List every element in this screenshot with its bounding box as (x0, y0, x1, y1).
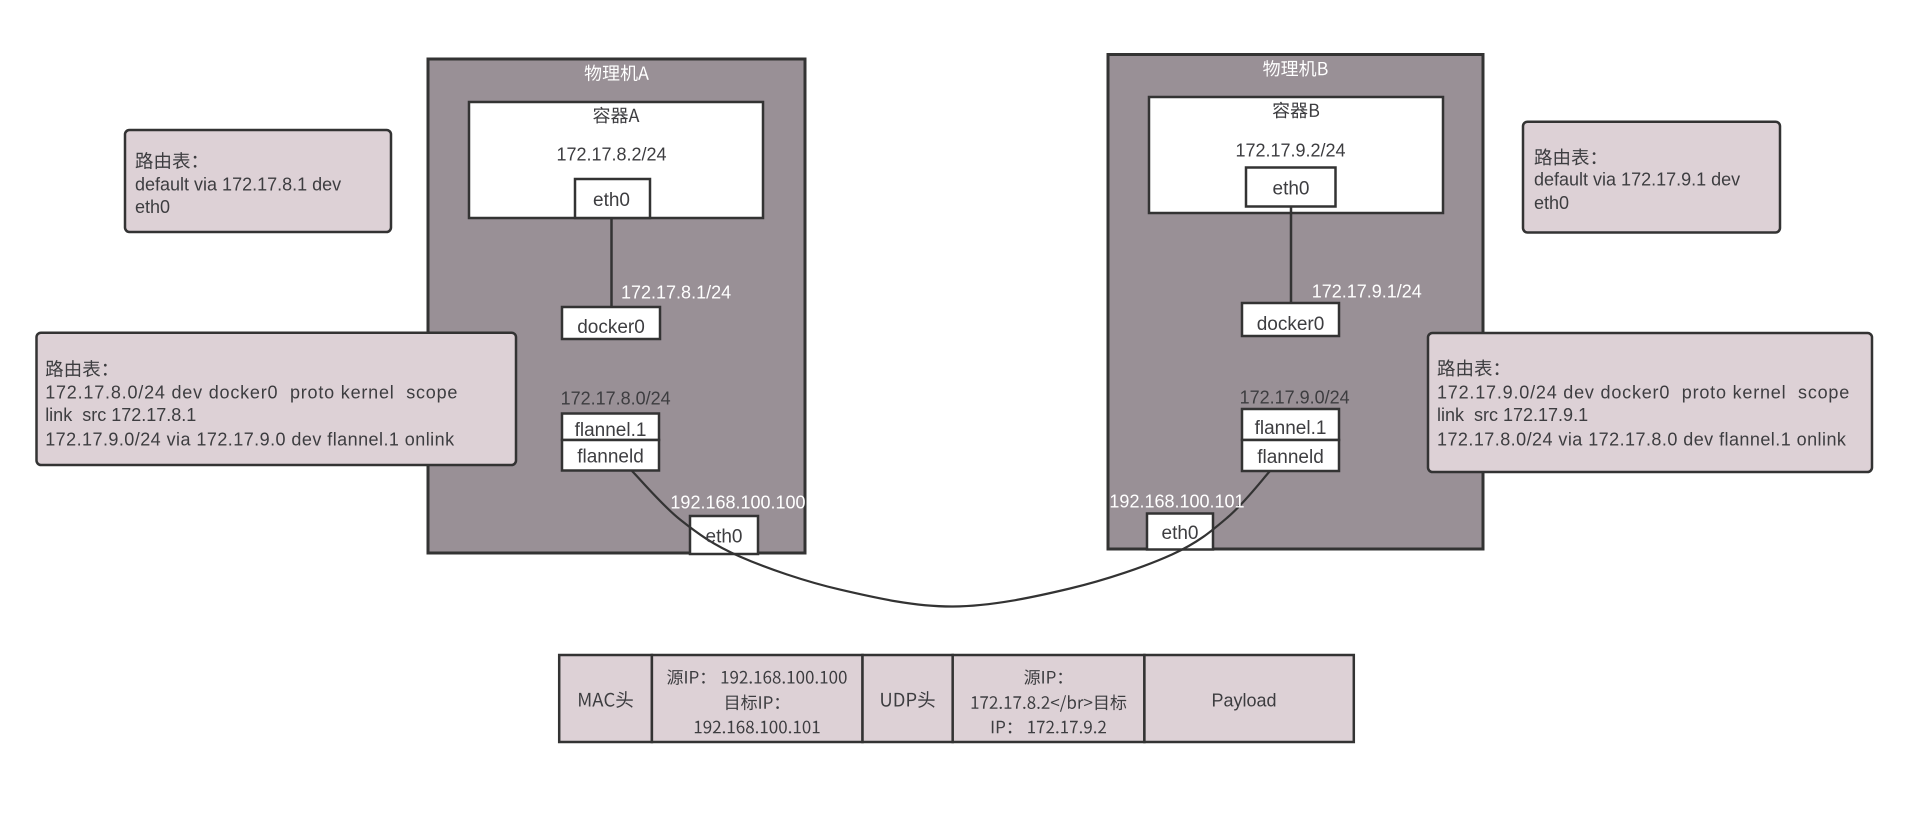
svg-text:docker0: docker0 (577, 317, 645, 338)
svg-text:default via 172.17.8.1 dev: default via 172.17.8.1 dev (135, 174, 341, 194)
svg-text:172.17.8.0/24: 172.17.8.0/24 (561, 389, 671, 409)
svg-text:172.17.8.0/24 dev docker0 pro: 172.17.8.0/24 dev docker0 proto kernel s… (45, 383, 458, 403)
svg-text:eth0: eth0 (135, 197, 170, 217)
svg-text:flanneld: flanneld (577, 447, 644, 468)
svg-text:flanneld: flanneld (1257, 447, 1324, 468)
svg-text:172.17.8.0/24 via 172.17.8.0 d: 172.17.8.0/24 via 172.17.8.0 dev flannel… (1437, 430, 1847, 450)
svg-text:eth0: eth0 (593, 190, 630, 211)
svg-text:docker0: docker0 (1257, 314, 1325, 335)
svg-text:link src 172.17.8.1: link src 172.17.8.1 (45, 405, 196, 425)
svg-text:eth0: eth0 (1273, 178, 1310, 199)
svg-text:default via 172.17.9.1 dev: default via 172.17.9.1 dev (1534, 170, 1740, 190)
svg-text:172.17.8.2/24: 172.17.8.2/24 (556, 145, 666, 165)
svg-text:Payload: Payload (1211, 691, 1276, 711)
svg-text:172.17.9.0/24 via 172.17.9.0 d: 172.17.9.0/24 via 172.17.9.0 dev flannel… (45, 430, 455, 450)
svg-text:192.168.100.101: 192.168.100.101 (1109, 492, 1244, 512)
svg-text:172.17.9.1/24: 172.17.9.1/24 (1312, 282, 1422, 302)
svg-text:flannel.1: flannel.1 (575, 420, 647, 441)
svg-text:eth0: eth0 (706, 526, 743, 547)
svg-text:172.17.8.1/24: 172.17.8.1/24 (621, 283, 731, 303)
svg-text:172.17.9.0/24: 172.17.9.0/24 (1240, 388, 1350, 408)
svg-text:eth0: eth0 (1534, 193, 1569, 213)
svg-text:192.168.100.100: 192.168.100.100 (670, 493, 805, 513)
svg-text:172.17.9.2/24: 172.17.9.2/24 (1235, 141, 1345, 161)
svg-text:172.17.9.0/24 dev docker0 pro: 172.17.9.0/24 dev docker0 proto kernel s… (1437, 383, 1850, 403)
svg-text:eth0: eth0 (1162, 523, 1199, 544)
svg-text:link src 172.17.9.1: link src 172.17.9.1 (1437, 405, 1588, 425)
svg-text:flannel.1: flannel.1 (1255, 418, 1327, 439)
